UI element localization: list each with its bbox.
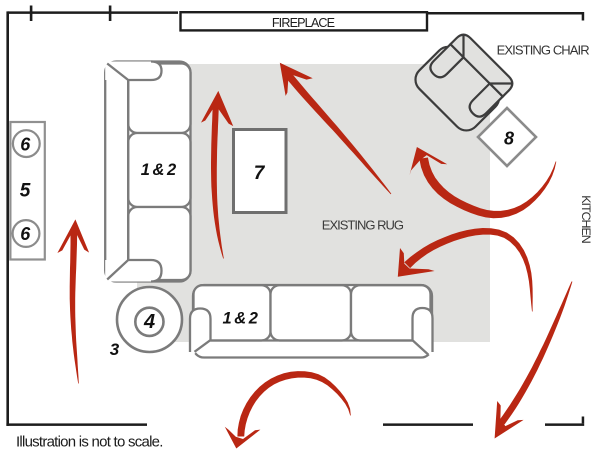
svg-text:5: 5 [20, 181, 31, 202]
svg-text:4: 4 [143, 311, 155, 333]
svg-text:6: 6 [20, 134, 31, 154]
svg-text:FIREPLACE: FIREPLACE [272, 16, 335, 30]
svg-text:Illustration is not to scale.: Illustration is not to scale. [16, 434, 163, 451]
svg-text:7: 7 [254, 163, 266, 184]
svg-text:1 & 2: 1 & 2 [141, 161, 176, 179]
svg-text:3: 3 [110, 340, 120, 359]
svg-text:1 & 2: 1 & 2 [222, 310, 257, 328]
svg-text:EXISTING CHAIR: EXISTING CHAIR [497, 42, 590, 57]
svg-text:EXISTING RUG: EXISTING RUG [322, 218, 404, 233]
svg-text:6: 6 [20, 224, 31, 244]
svg-text:KITCHEN: KITCHEN [579, 195, 593, 242]
svg-text:8: 8 [504, 128, 514, 148]
